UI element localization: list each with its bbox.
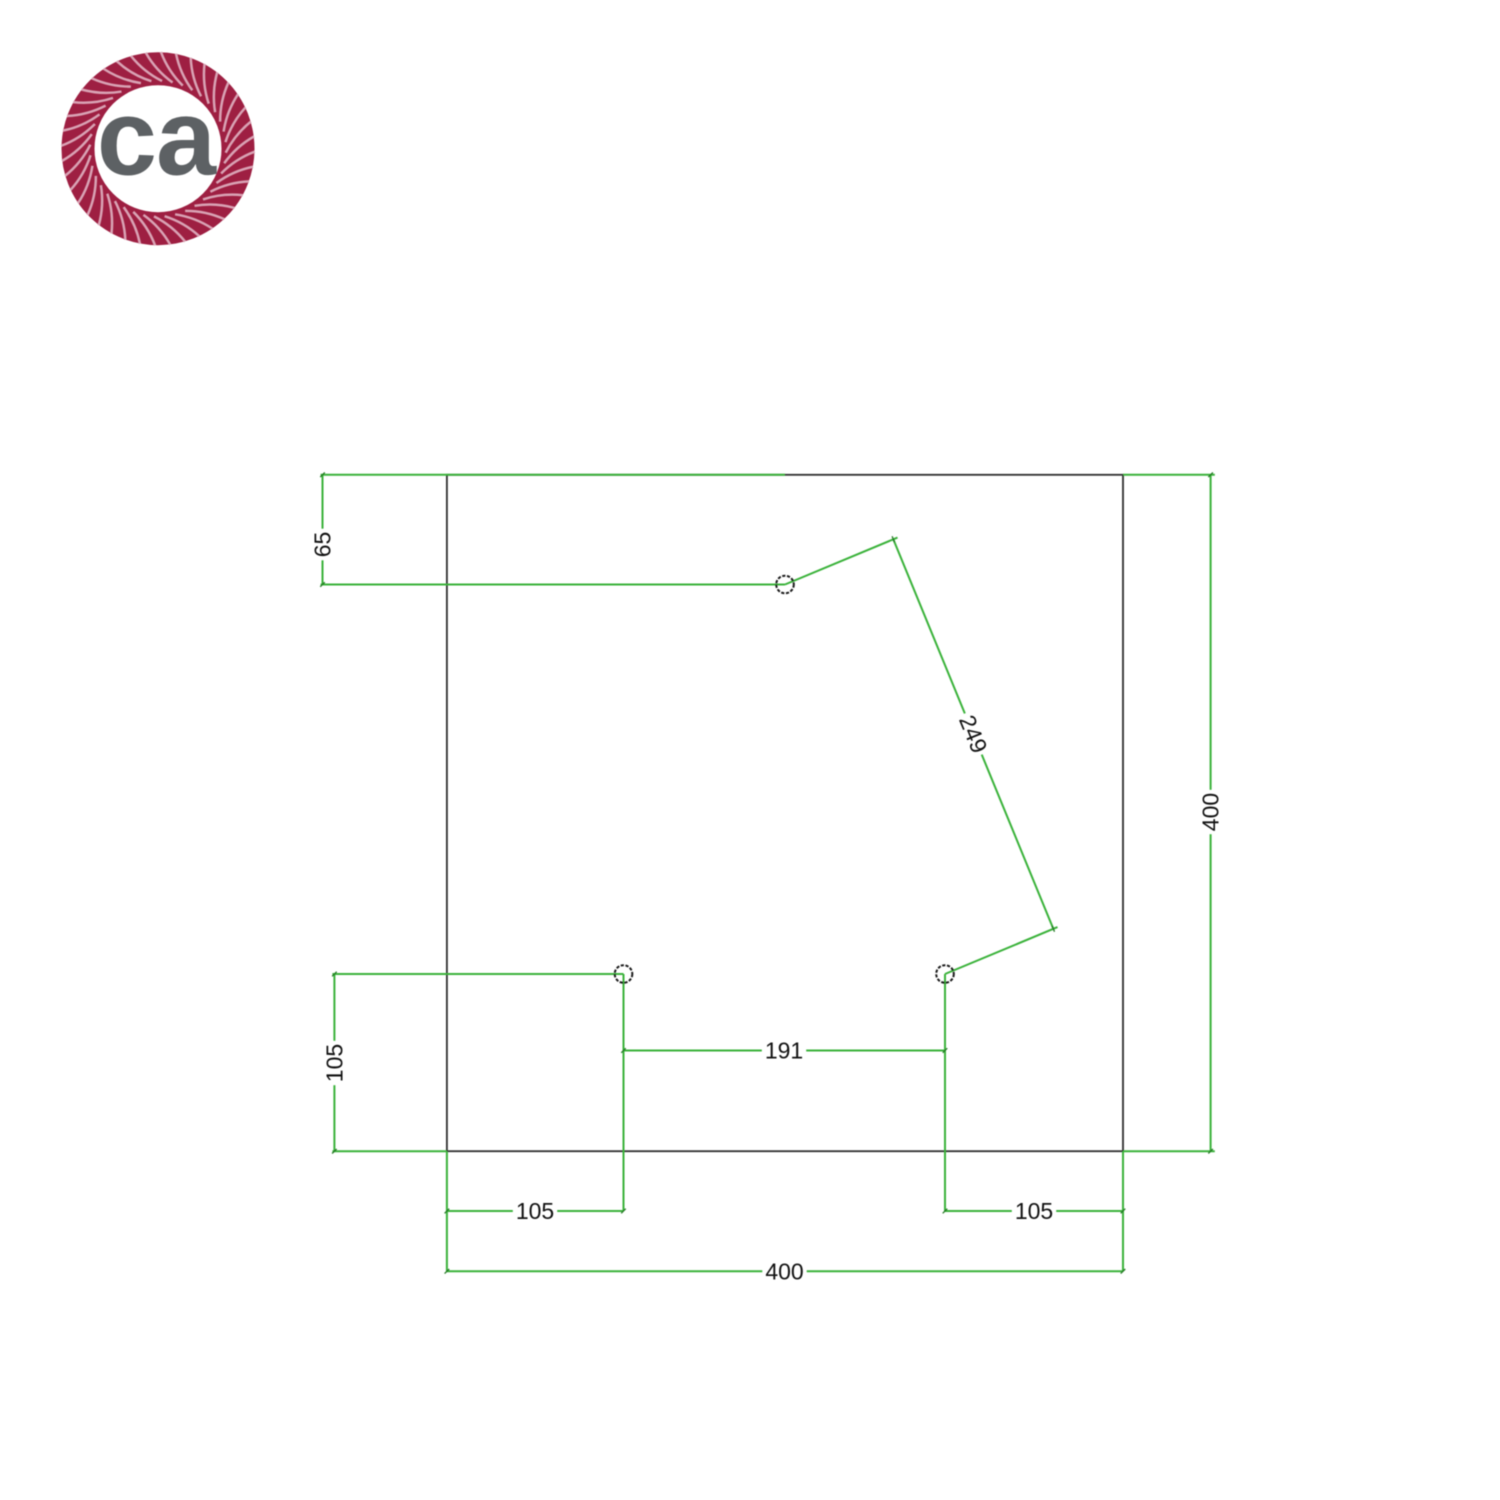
svg-text:400: 400: [765, 1258, 803, 1284]
svg-text:400: 400: [1198, 793, 1224, 831]
svg-text:105: 105: [516, 1198, 554, 1224]
svg-text:191: 191: [765, 1038, 803, 1064]
svg-text:ca: ca: [97, 77, 217, 198]
svg-text:105: 105: [1015, 1198, 1053, 1224]
svg-text:65: 65: [310, 532, 336, 558]
svg-text:105: 105: [321, 1044, 347, 1082]
